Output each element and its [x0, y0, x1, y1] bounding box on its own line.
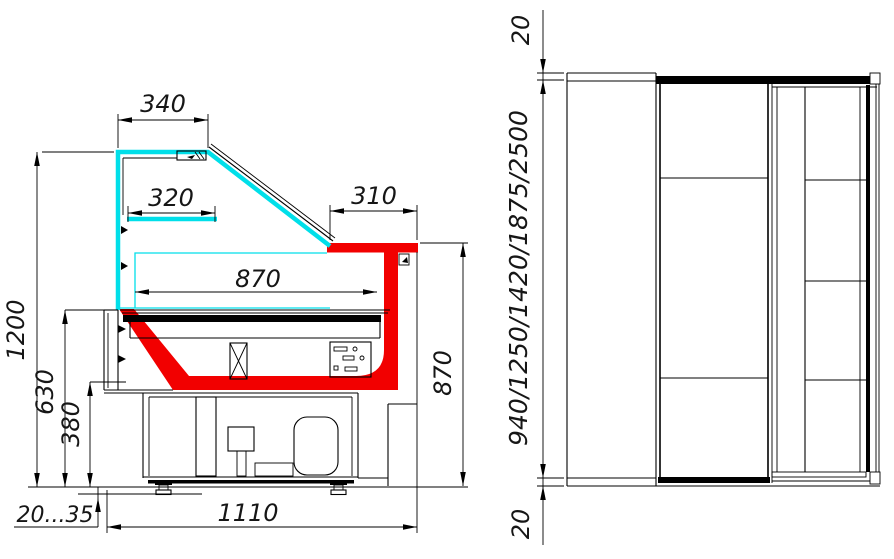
- right-wall: [866, 85, 870, 472]
- dim-display-depth: 870: [135, 265, 377, 295]
- front-view-dimensions: 20 940/1250/1420/1875/2500 20: [504, 10, 564, 545]
- counter-bracket: [399, 254, 409, 265]
- counter-red-top: [327, 243, 418, 253]
- dim-top-glass-depth: 340: [118, 90, 208, 148]
- clip-mark-2: [121, 262, 128, 270]
- clip-mark-4: [118, 355, 126, 363]
- machine-base: [143, 393, 358, 484]
- inner-liner-cyan: [135, 253, 327, 308]
- bottom-band-mid: [658, 477, 770, 483]
- dim-label-bottom-20: 20: [507, 509, 535, 540]
- dim-label-20-35: 20...35: [17, 503, 94, 528]
- dim-label-1200: 1200: [2, 299, 30, 360]
- slant-glass-edge-1: [209, 147, 333, 241]
- base-partition: [196, 397, 216, 476]
- dim-label-310: 310: [351, 182, 397, 210]
- slant-glass-edge-2: [211, 144, 335, 238]
- top-band: [656, 76, 870, 84]
- dim-label-top-20: 20: [507, 15, 535, 46]
- electrical-box: [228, 427, 254, 451]
- dim-counter-overhang: 310: [330, 182, 417, 240]
- case-body: [656, 73, 880, 484]
- compressor: [294, 417, 338, 475]
- clip-mark-3: [118, 325, 126, 333]
- glass-front-outline: [118, 152, 330, 310]
- clip-mark-1: [121, 226, 128, 234]
- drawing-svg: 340 320 310 870: [0, 0, 894, 559]
- dim-shelf-depth: 320: [128, 184, 215, 222]
- dim-label-870-depth: 870: [235, 265, 281, 293]
- technical-drawing: 340 320 310 870: [0, 0, 894, 559]
- dim-label-320: 320: [148, 184, 194, 212]
- dim-leg-adjust: 20...35: [14, 487, 101, 528]
- dim-label-630: 630: [31, 369, 59, 415]
- corner-cap-bottom: [870, 472, 880, 484]
- end-panel: [567, 73, 880, 486]
- dim-label-1110: 1110: [217, 499, 278, 527]
- side-view-dimensions: 340 320 310 870: [2, 90, 468, 533]
- dim-counter-height: 870: [420, 243, 468, 486]
- well-column: [230, 343, 247, 379]
- shelf-base-band: [772, 472, 866, 477]
- dim-base-height: 380: [57, 382, 126, 487]
- electrical-panel: [330, 342, 371, 377]
- display-deck: [120, 310, 390, 338]
- front-view: [567, 73, 880, 486]
- dim-well-height: 630: [31, 310, 112, 487]
- drain-tray: [255, 463, 293, 476]
- dim-label-870-height: 870: [429, 350, 457, 396]
- side-section-view: [28, 144, 468, 495]
- foot-rear: [330, 482, 347, 495]
- dim-label-340: 340: [140, 90, 186, 118]
- dim-overall-depth: 1110: [107, 404, 417, 533]
- foot-front: [155, 482, 172, 495]
- dim-label-380: 380: [57, 401, 85, 447]
- dim-label-heights: 940/1250/1420/1875/2500: [504, 110, 533, 446]
- corner-cap-top: [870, 73, 880, 84]
